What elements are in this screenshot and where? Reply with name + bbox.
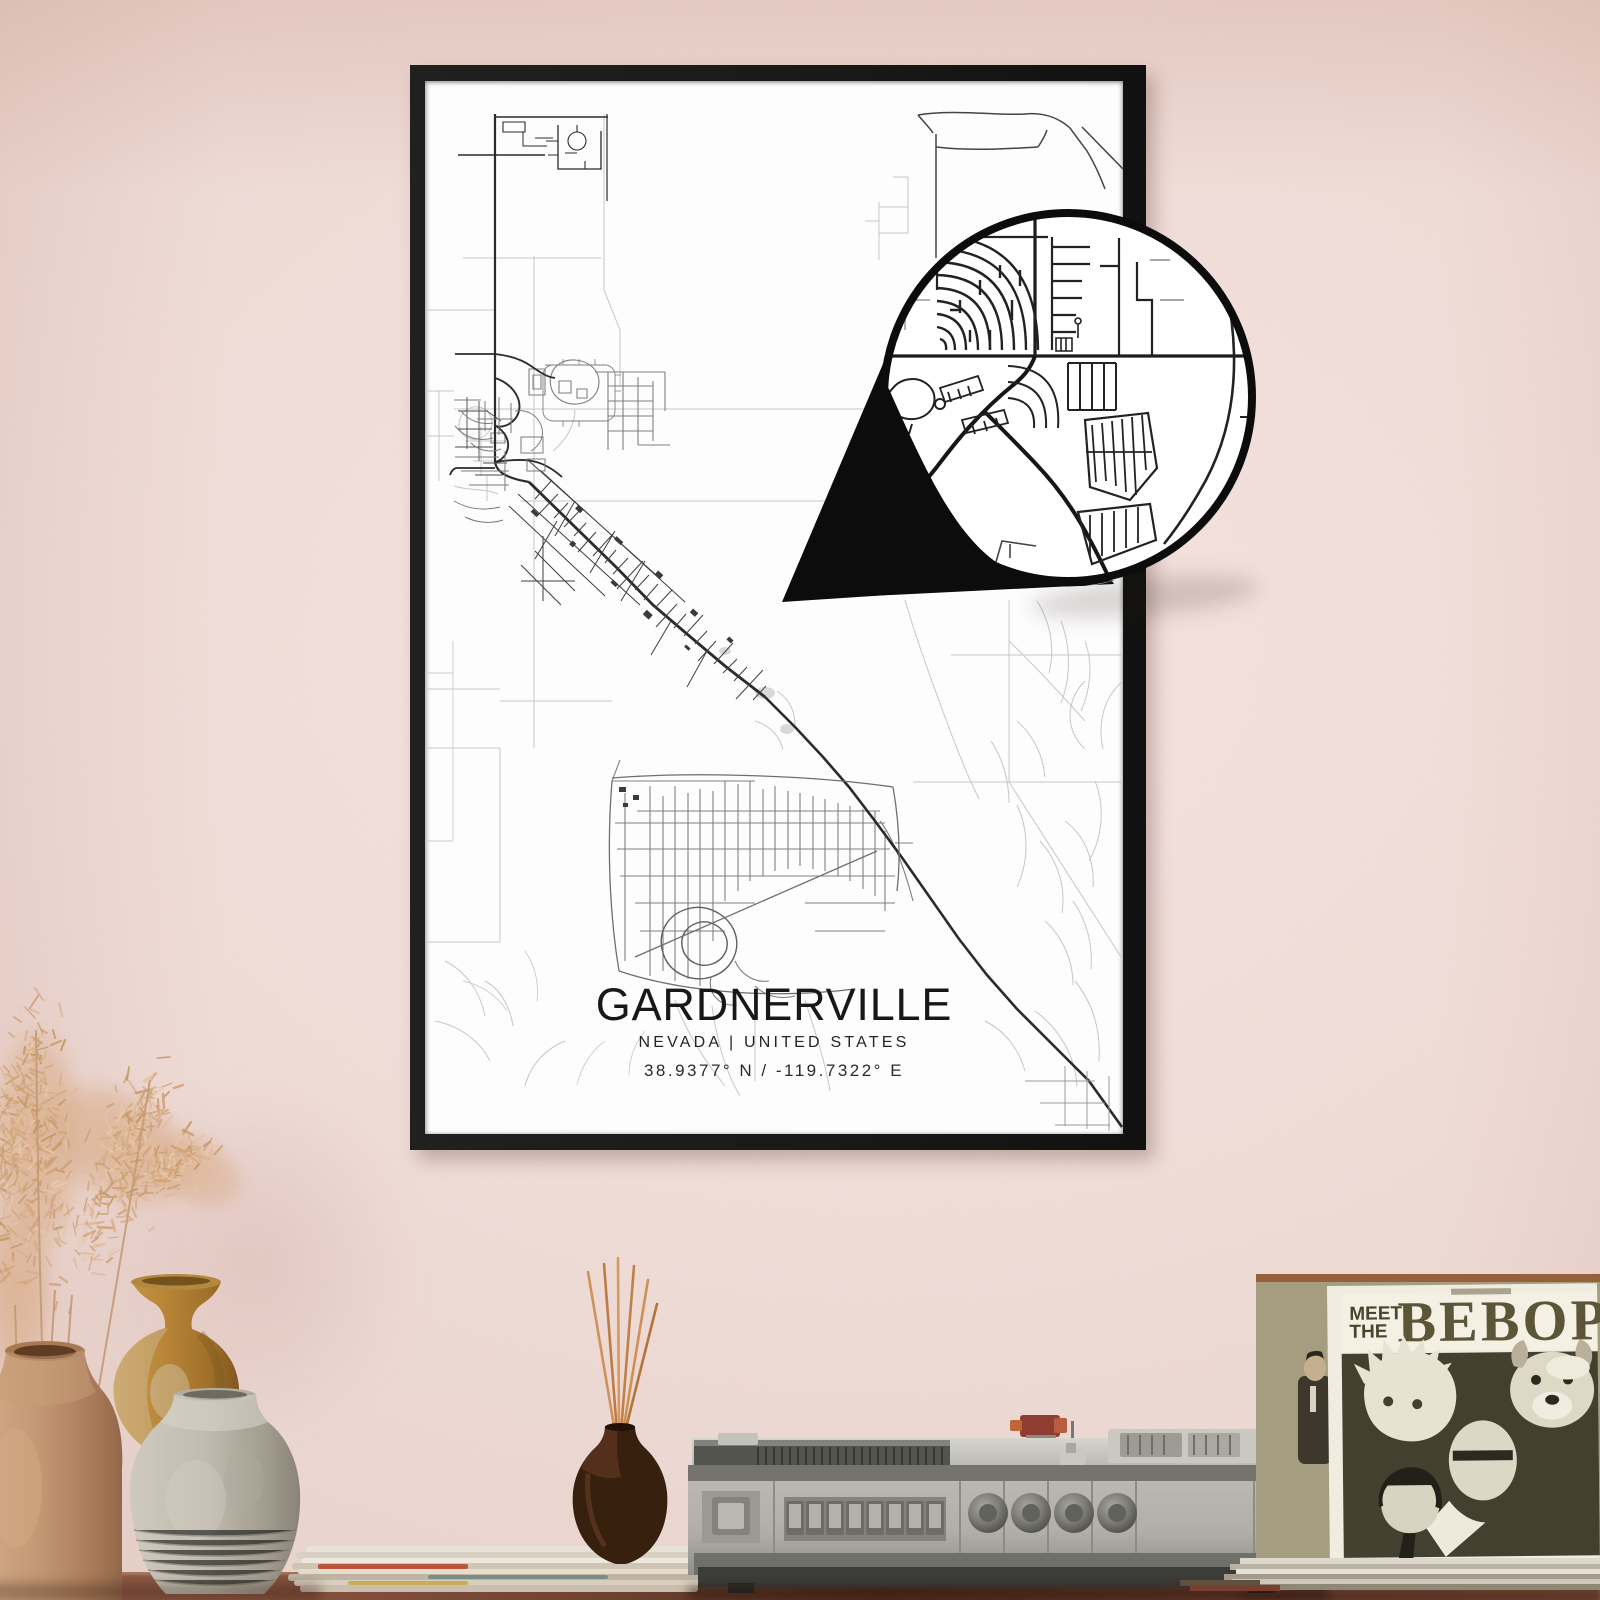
svg-text:THE: THE [1349, 1321, 1387, 1342]
svg-text:BEBOP: BEBOP [1397, 1287, 1600, 1354]
